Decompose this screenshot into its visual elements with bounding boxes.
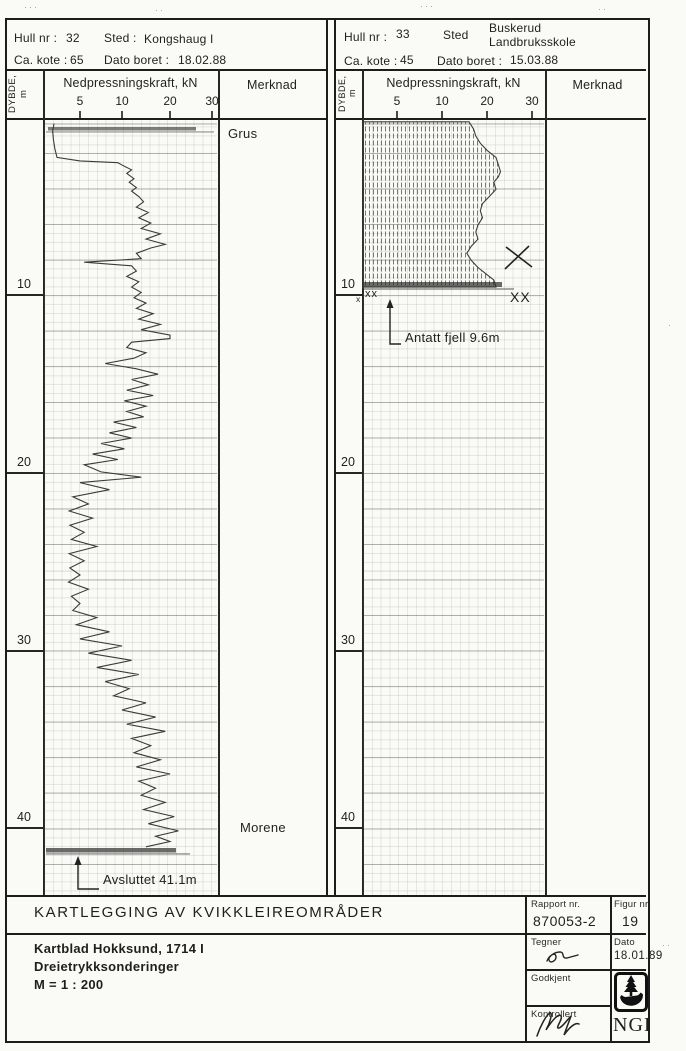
sted-value-33-line2: Landbruksskole bbox=[489, 35, 576, 49]
sted-value-32: Kongshaug I bbox=[144, 32, 214, 46]
force-tick-5: 5 bbox=[68, 94, 92, 108]
left-merknad-border bbox=[218, 69, 220, 895]
scan-noise: ··· bbox=[24, 2, 39, 12]
dato-label-32: Dato boret : bbox=[104, 53, 169, 67]
tegner-label: Tegner bbox=[531, 937, 561, 948]
merknad-note-grus: Grus bbox=[228, 126, 257, 141]
force-tick-10: 10 bbox=[110, 94, 134, 108]
right-panel-left-border bbox=[334, 18, 336, 895]
kote-label-32: Ca. kote : bbox=[14, 53, 67, 67]
depth-10-32: 10 bbox=[9, 277, 39, 291]
plot-area-32 bbox=[44, 119, 217, 895]
plot-area-33 bbox=[363, 119, 544, 895]
godkjent-label: Godkjent bbox=[531, 973, 571, 984]
force-axis-title-32: Nedpressningskraft, kN bbox=[43, 76, 218, 90]
depth-10-33: 10 bbox=[337, 277, 359, 291]
titleblock-top-border bbox=[5, 895, 646, 897]
depth-20-32: 20 bbox=[9, 455, 39, 469]
right-merknad-border bbox=[545, 69, 547, 895]
method-line: Dreietrykksonderinger bbox=[34, 958, 179, 976]
titleblock-vline-1 bbox=[525, 895, 527, 1041]
godkjent-row-divider bbox=[525, 1005, 610, 1007]
map-sheet-line: Kartblad Hokksund, 1714 I bbox=[34, 940, 204, 958]
depth-tick bbox=[336, 827, 362, 829]
dato-value-32: 18.02.88 bbox=[178, 53, 226, 67]
merknad-header-33: Merknad bbox=[545, 78, 650, 92]
hull-label-33: Hull nr : bbox=[344, 30, 387, 44]
dato-label: Dato bbox=[614, 937, 635, 948]
scale-line: M = 1 : 200 bbox=[34, 976, 103, 994]
titleblock-vline-2 bbox=[610, 895, 612, 1041]
avsluttet-note: Avsluttet 41.1m bbox=[103, 872, 197, 887]
depth-tick bbox=[7, 827, 43, 829]
kote-value-33: 45 bbox=[400, 53, 414, 67]
force-tick-5: 5 bbox=[385, 94, 409, 108]
depth-axis-title-32: DYBDE, m bbox=[7, 71, 41, 116]
depth-40-33: 40 bbox=[337, 810, 359, 824]
depth-tick bbox=[336, 650, 362, 652]
tegner-row-divider bbox=[525, 969, 646, 971]
sted-label-32: Sted : bbox=[104, 31, 137, 45]
dato-label-33: Dato boret : bbox=[437, 54, 502, 68]
depth-tick bbox=[7, 294, 43, 296]
force-tick-30: 30 bbox=[520, 94, 544, 108]
figure-title: KARTLEGGING AV KVIKKLEIREOMRÅDER bbox=[34, 904, 384, 921]
dato-value-33: 15.03.88 bbox=[510, 53, 558, 67]
kote-label-33: Ca. kote : bbox=[344, 54, 397, 68]
figur-label: Figur nr. bbox=[614, 899, 651, 910]
ngi-logo-text: NGI bbox=[613, 1014, 652, 1037]
rapport-label: Rapport nr. bbox=[531, 899, 580, 910]
hull-value-32: 32 bbox=[66, 31, 80, 45]
scanned-sounding-sheet: ··· ·· ··· ·· · ·· Hull nr : 32 Sted : K… bbox=[0, 0, 686, 1051]
depth-20-33: 20 bbox=[337, 455, 359, 469]
bedrock-mark-XX: XX bbox=[510, 289, 531, 305]
scan-noise: · bbox=[668, 320, 673, 330]
antatt-fjell-note: Antatt fjell 9.6m bbox=[405, 330, 500, 345]
rapport-value: 870053-2 bbox=[533, 913, 596, 929]
hull-value-33: 33 bbox=[396, 27, 410, 41]
hull-label-32: Hull nr : bbox=[14, 31, 57, 45]
left-header-divider bbox=[5, 69, 326, 71]
force-axis-title-33: Nedpressningskraft, kN bbox=[362, 76, 545, 90]
merknad-note-morene: Morene bbox=[240, 820, 286, 835]
scan-noise: ·· bbox=[662, 940, 672, 950]
left-panel-right-border bbox=[326, 18, 328, 895]
sted-label-33: Sted bbox=[443, 28, 469, 42]
scan-noise: ·· bbox=[155, 5, 165, 15]
figur-value: 19 bbox=[622, 913, 639, 929]
right-header-divider bbox=[334, 69, 646, 71]
depth-40-32: 40 bbox=[9, 810, 39, 824]
depth-tick bbox=[336, 472, 362, 474]
depth-tick bbox=[7, 650, 43, 652]
depth-30-33: 30 bbox=[337, 633, 359, 647]
force-tick-20: 20 bbox=[475, 94, 499, 108]
merknad-header-32: Merknad bbox=[218, 78, 326, 92]
force-tick-30: 30 bbox=[200, 94, 224, 108]
depth-axis-title-33: DYBDE, m bbox=[337, 71, 361, 116]
scan-noise: ··· bbox=[420, 1, 435, 11]
scan-noise: ·· bbox=[598, 4, 608, 14]
kontrollert-label: Kontrollert bbox=[531, 1009, 577, 1020]
sted-value-33-line1: Buskerud bbox=[489, 21, 541, 35]
force-tick-20: 20 bbox=[158, 94, 182, 108]
titleblock-row-divider bbox=[5, 933, 646, 935]
bedrock-mark-small-x: x bbox=[356, 294, 361, 304]
depth-tick bbox=[7, 472, 43, 474]
dato-value: 18.01.89 bbox=[614, 950, 663, 962]
force-tick-10: 10 bbox=[430, 94, 454, 108]
bedrock-mark-xx: xx bbox=[365, 288, 378, 300]
depth-30-32: 30 bbox=[9, 633, 39, 647]
kote-value-32: 65 bbox=[70, 53, 84, 67]
